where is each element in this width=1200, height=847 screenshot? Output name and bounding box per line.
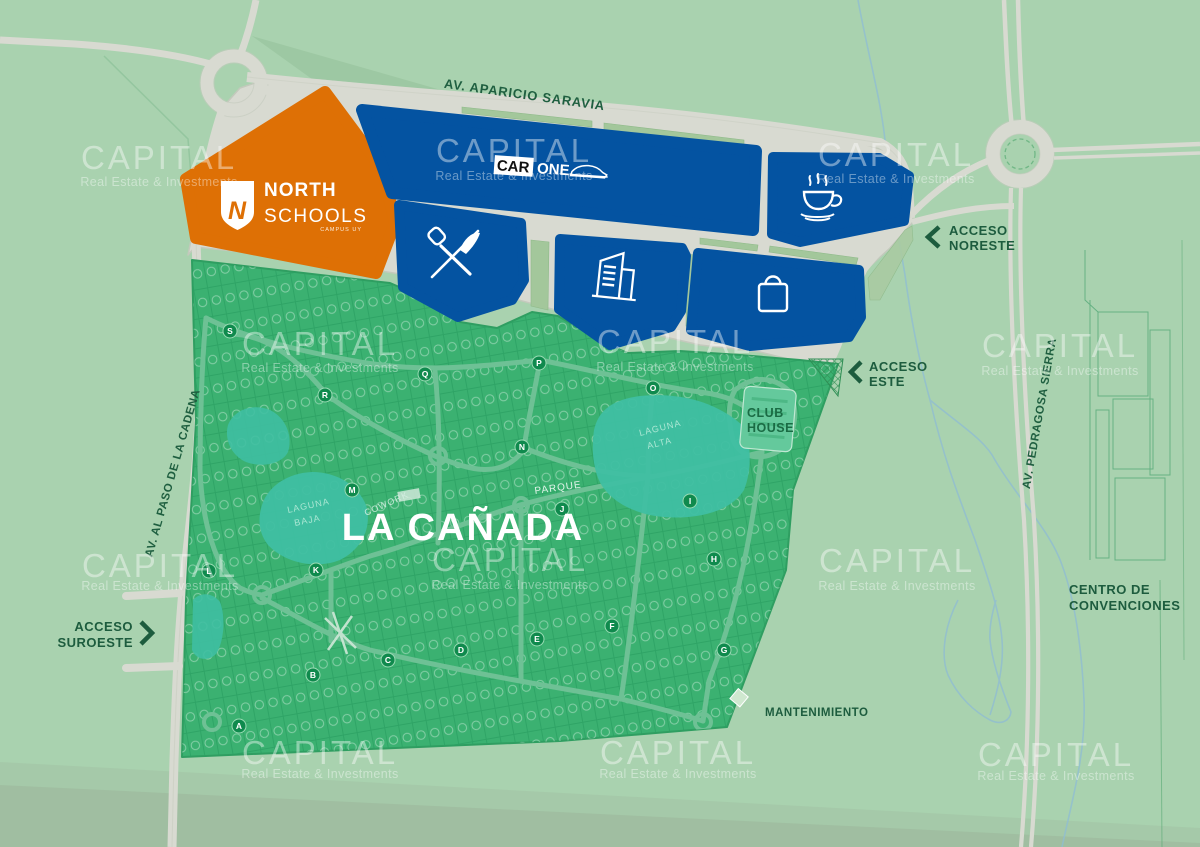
svg-text:CLUB: CLUB (747, 406, 784, 420)
svg-text:K: K (313, 565, 320, 575)
svg-text:Real Estate & Investments: Real Estate & Investments (435, 169, 592, 183)
svg-text:Real Estate & Investments: Real Estate & Investments (241, 361, 398, 375)
svg-text:A: A (236, 721, 242, 731)
svg-text:F: F (609, 621, 614, 631)
svg-text:CAPITAL: CAPITAL (81, 139, 237, 176)
svg-text:CAPITAL: CAPITAL (432, 541, 588, 578)
svg-text:MANTENIMIENTO: MANTENIMIENTO (765, 707, 868, 719)
svg-text:Real Estate & Investments: Real Estate & Investments (977, 769, 1134, 783)
svg-text:Real Estate & Investments: Real Estate & Investments (80, 175, 237, 189)
svg-text:SCHOOLS: SCHOOLS (264, 206, 367, 227)
svg-text:Real Estate & Investments: Real Estate & Investments (981, 364, 1138, 378)
svg-text:CAPITAL: CAPITAL (597, 323, 753, 360)
svg-text:NORTH: NORTH (264, 180, 337, 201)
svg-text:CAPITAL: CAPITAL (242, 325, 398, 362)
svg-text:NORESTE: NORESTE (949, 238, 1015, 253)
svg-text:N: N (228, 197, 247, 225)
svg-text:Real Estate & Investments: Real Estate & Investments (817, 172, 974, 186)
svg-text:M: M (348, 485, 355, 495)
svg-text:Real Estate & Investments: Real Estate & Investments (596, 360, 753, 374)
svg-text:N: N (519, 442, 525, 452)
svg-text:ACCESO: ACCESO (74, 619, 133, 634)
svg-text:S: S (227, 326, 233, 336)
svg-text:H: H (711, 554, 717, 564)
svg-text:Real Estate & Investments: Real Estate & Investments (81, 579, 238, 593)
svg-text:R: R (322, 390, 328, 400)
svg-text:G: G (721, 645, 728, 655)
svg-text:CAPITAL: CAPITAL (982, 327, 1138, 364)
svg-text:ACCESO: ACCESO (949, 223, 1008, 238)
svg-text:CONVENCIONES: CONVENCIONES (1069, 598, 1180, 613)
svg-text:P: P (536, 358, 542, 368)
svg-text:Real Estate & Investments: Real Estate & Investments (599, 767, 756, 781)
svg-text:O: O (650, 383, 657, 393)
svg-text:CAPITAL: CAPITAL (818, 136, 974, 173)
svg-text:C: C (385, 655, 391, 665)
svg-text:HOUSE: HOUSE (747, 421, 794, 435)
svg-text:CAPITAL: CAPITAL (600, 734, 756, 771)
svg-text:ESTE: ESTE (869, 374, 905, 389)
svg-text:I: I (689, 496, 691, 506)
svg-text:E: E (534, 634, 540, 644)
svg-text:CAPITAL: CAPITAL (242, 734, 398, 771)
svg-text:Real Estate & Investments: Real Estate & Investments (241, 767, 398, 781)
svg-text:CAMPUS UY: CAMPUS UY (320, 227, 362, 233)
svg-text:CAPITAL: CAPITAL (819, 542, 975, 579)
svg-text:ACCESO: ACCESO (869, 359, 928, 374)
svg-text:Q: Q (422, 369, 429, 379)
svg-text:CAPITAL: CAPITAL (978, 736, 1134, 773)
svg-text:CAPITAL: CAPITAL (436, 132, 592, 169)
svg-text:D: D (458, 645, 464, 655)
svg-text:CENTRO DE: CENTRO DE (1069, 582, 1150, 597)
svg-text:SUROESTE: SUROESTE (57, 635, 133, 650)
svg-text:Real Estate & Investments: Real Estate & Investments (818, 579, 975, 593)
svg-text:B: B (310, 670, 316, 680)
svg-text:Real Estate & Investments: Real Estate & Investments (431, 578, 588, 592)
